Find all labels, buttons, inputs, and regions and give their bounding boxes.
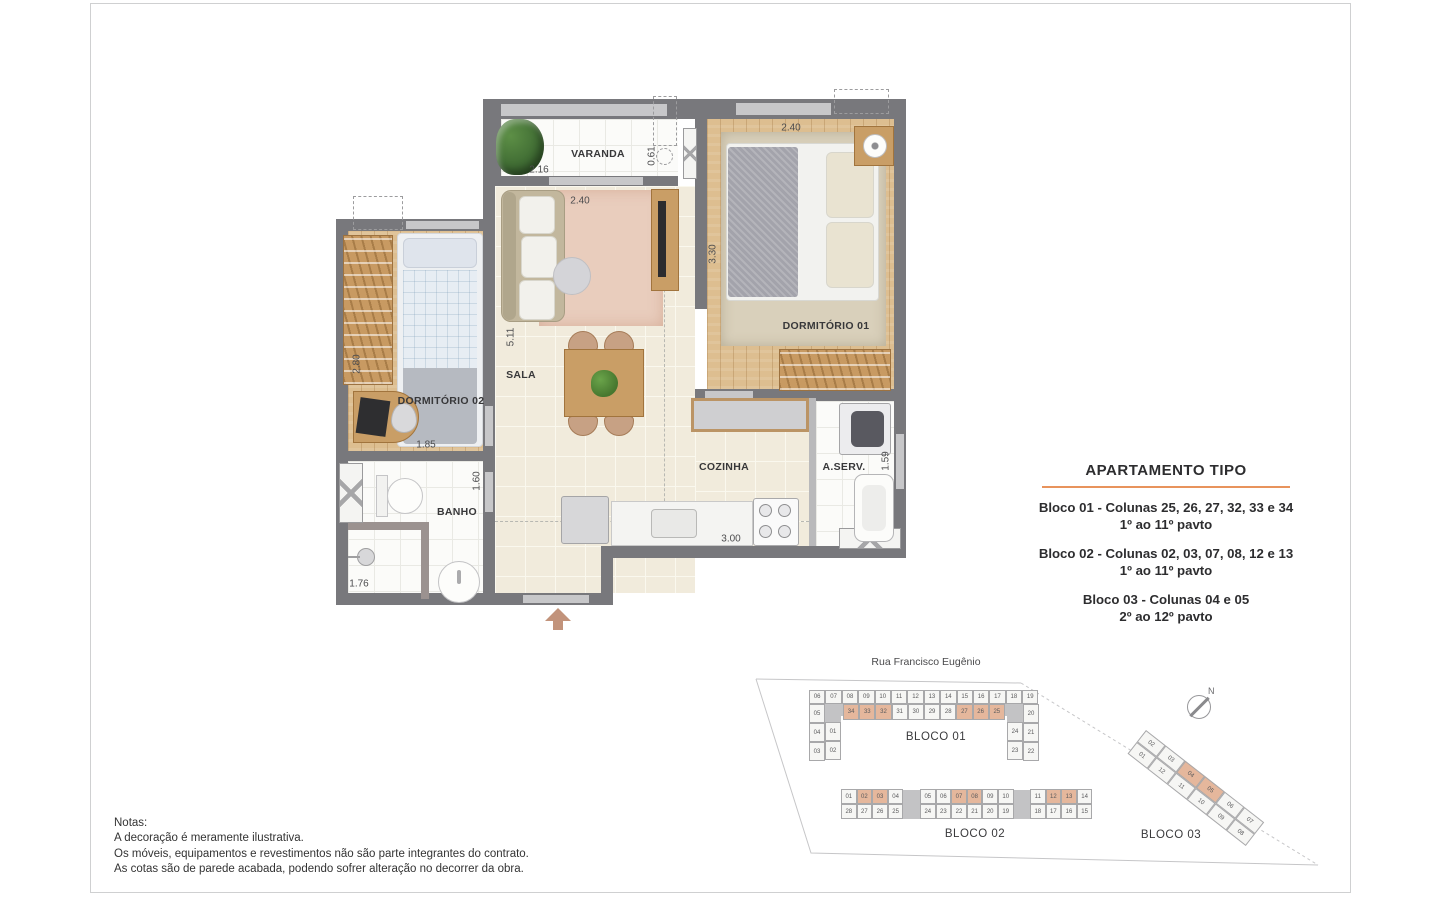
site-unit: 04 [809,723,825,742]
site-unit: 15 [1077,804,1093,819]
site-unit: 01 [841,789,857,804]
site-unit: 30 [908,704,924,720]
street-label: Rua Francisco Eugênio [836,656,1016,668]
site-unit: 19 [1022,690,1038,704]
dimension: 1.85 [416,440,435,451]
plan-sheet: VARANDA SALA DORMITÓRIO 01 DORMITÓRIO 02… [90,3,1351,893]
site-unit: 12 [907,690,923,704]
bloco01-left-outer: 050403 [809,704,825,761]
window [736,103,831,115]
sliding-door [549,177,643,185]
block-info-line2: 1º ao 11º pavto [1021,563,1311,580]
entry-arrow [545,608,571,621]
dimension: 3.30 [708,244,719,263]
site-unit: 31 [892,704,908,720]
site-unit: 21 [1023,723,1039,742]
site-unit: 22 [951,804,967,819]
wardrobe [779,349,891,391]
connector [903,790,920,819]
bloco01-top-row: 0607080910111213141516171819 [809,690,1038,704]
bloco01-right-outer: 202122 [1023,704,1039,761]
site-unit: 07 [951,789,967,804]
bed-blanket [728,147,798,297]
site-unit: 32 [875,704,891,720]
site-unit: 26 [872,804,888,819]
site-unit: 06 [936,789,952,804]
dimension: 2.80 [352,354,363,373]
dimension: 1.59 [881,451,892,470]
tank-basin [862,485,886,531]
entry-arrow-stem [553,621,563,630]
site-unit: 26 [973,704,989,720]
block-info-line1: Bloco 03 - Colunas 04 e 05 [1021,592,1311,609]
fridge [561,496,609,544]
block-info: Bloco 03 - Colunas 04 e 05 2º ao 12º pav… [1021,592,1311,625]
site-unit: 28 [940,704,956,720]
site-unit: 05 [809,704,825,723]
dimension: 3.00 [721,534,740,545]
site-unit: 28 [841,804,857,819]
site-unit: 20 [1023,704,1039,723]
site-unit: 13 [924,690,940,704]
wardrobe [343,235,393,385]
block-info: Bloco 01 - Colunas 25, 26, 27, 32, 33 e … [1021,500,1311,533]
site-unit: 03 [809,742,825,761]
bloco01-inner-row: 34333231302928272625 [843,704,1005,720]
site-unit: 25 [989,704,1005,720]
title-underline [1042,486,1290,488]
ac-unit-outline [656,148,673,165]
site-unit: 03 [872,789,888,804]
site-unit: 27 [956,704,972,720]
info-panel: APARTAMENTO TIPO Bloco 01 - Colunas 25, … [1021,462,1311,638]
block-info-line2: 1º ao 11º pavto [1021,517,1311,534]
site-unit: 21 [967,804,983,819]
site-unit: 02 [857,789,873,804]
north-compass-icon [1187,695,1211,719]
page-title: APARTAMENTO TIPO [1021,462,1311,479]
site-unit: 23 [1007,741,1023,760]
site-unit: 12 [1046,789,1062,804]
sofa-pillow [521,236,557,278]
site-unit: 10 [875,690,891,704]
site-unit: 14 [940,690,956,704]
site-unit: 01 [825,722,841,741]
tv [658,201,666,277]
site-unit: 23 [936,804,952,819]
shaft [339,463,363,523]
stove-burner [778,504,791,517]
site-unit: 33 [859,704,875,720]
wall [348,451,483,461]
entry-threshold [523,595,589,603]
site-unit: 34 [843,704,859,720]
dimension: 2.40 [570,196,589,207]
site-unit: 11 [1030,789,1046,804]
block-info-line1: Bloco 01 - Colunas 25, 26, 27, 32, 33 e … [1021,500,1311,517]
compass-needle [1189,697,1210,718]
site-unit: 20 [982,804,998,819]
site-unit: 25 [888,804,904,819]
toilet-bowl [387,478,423,514]
site-unit: 19 [998,804,1014,819]
dimension: 1.76 [349,579,368,590]
site-unit: 29 [924,704,940,720]
room-label-varanda: VARANDA [571,148,625,160]
bed-plaid [403,270,477,368]
bloco02-units: 28272625 [841,804,903,819]
note-line: As cotas são de parede acabada, podendo … [114,862,529,877]
site-unit: 02 [825,741,841,760]
site-unit: 09 [982,789,998,804]
site-unit: 06 [809,690,825,704]
wall [894,99,906,558]
partition [809,398,816,546]
kitchen-counter [691,398,809,432]
shaft [683,128,697,179]
bloco02-units: 050607080910 [920,789,1014,804]
stove-burner [759,525,772,538]
dimension: 2.40 [781,123,800,134]
shower-partition [348,522,428,530]
dimension: 2.16 [529,165,548,176]
block-info-line1: Bloco 02 - Colunas 02, 03, 07, 08, 12 e … [1021,546,1311,563]
site-unit: 15 [957,690,973,704]
bloco01-left-inner: 0102 [825,722,841,760]
bloco02-units: 242322212019 [920,804,1014,819]
bed-pillow [826,222,874,288]
north-label: N [1208,686,1215,696]
bloco02-units: 11121314 [1030,789,1092,804]
stove-burner [778,525,791,538]
side-table [553,257,591,295]
dimension: 5.11 [506,328,517,347]
site-unit: 04 [888,789,904,804]
washer-drum [851,411,884,447]
kitchen-sink [651,509,697,538]
block-info: Bloco 02 - Colunas 02, 03, 07, 08, 12 e … [1021,546,1311,579]
dimension: 1.60 [472,471,483,490]
site-unit: 14 [1077,789,1093,804]
bloco01-right-inner: 2423 [1007,722,1023,760]
laptop [356,397,391,437]
note-line: A decoração é meramente ilustrativa. [114,831,529,846]
table-lamp [863,134,887,158]
ac-unit-outline [653,96,677,146]
sofa-pillow [519,196,555,234]
sink-faucet [457,570,461,584]
room-label-aserv: A.SERV. [823,461,866,473]
shower-arm [348,556,360,558]
sofa-pillow [519,280,555,320]
site-unit: 18 [1030,804,1046,819]
room-label-sala: SALA [506,369,536,381]
connector [1013,790,1030,819]
bloco02-units: 01020304 [841,789,903,804]
door-opening [485,472,493,512]
site-unit: 24 [1007,722,1023,741]
site-unit: 13 [1061,789,1077,804]
door-opening [485,406,493,446]
stove-burner [759,504,772,517]
site-unit: 08 [967,789,983,804]
bloco02-label: BLOCO 02 [915,828,1035,840]
shower-partition [421,522,429,599]
bloco02-units: 18171615 [1030,804,1092,819]
site-unit: 05 [920,789,936,804]
room-label-cozinha: COZINHA [699,461,749,473]
site-unit: 22 [1023,742,1039,761]
site-unit: 16 [1061,804,1077,819]
site-unit: 16 [973,690,989,704]
site-unit: 18 [1006,690,1022,704]
bed-pillow [403,238,477,268]
bloco03-label: BLOCO 03 [1111,829,1231,841]
site-unit: 07 [825,690,841,704]
site-unit: 17 [1046,804,1062,819]
room-label-dormitorio2: DORMITÓRIO 02 [398,395,485,407]
ac-unit-outline [834,89,889,114]
block-info-line2: 2º ao 12º pavto [1021,609,1311,626]
sofa-back [503,192,516,320]
site-unit: 08 [842,690,858,704]
ac-unit-outline [353,196,403,230]
notes-title: Notas: [114,816,529,831]
planter-sill [495,104,667,116]
dimension: 0.61 [647,146,658,165]
window [406,221,479,229]
room-label-banho: BANHO [437,506,477,518]
site-unit: 09 [858,690,874,704]
note-line: Os móveis, equipamentos e revestimentos … [114,847,529,862]
site-unit: 24 [920,804,936,819]
room-label-dormitorio1: DORMITÓRIO 01 [783,320,870,332]
site-unit: 10 [998,789,1014,804]
desk-chair [391,403,417,433]
window [896,434,904,489]
wall [483,185,495,605]
site-unit: 17 [989,690,1005,704]
site-unit: 11 [891,690,907,704]
site-unit: 27 [857,804,873,819]
bloco01-label: BLOCO 01 [876,731,996,743]
notes: Notas: A decoração é meramente ilustrati… [114,816,529,878]
